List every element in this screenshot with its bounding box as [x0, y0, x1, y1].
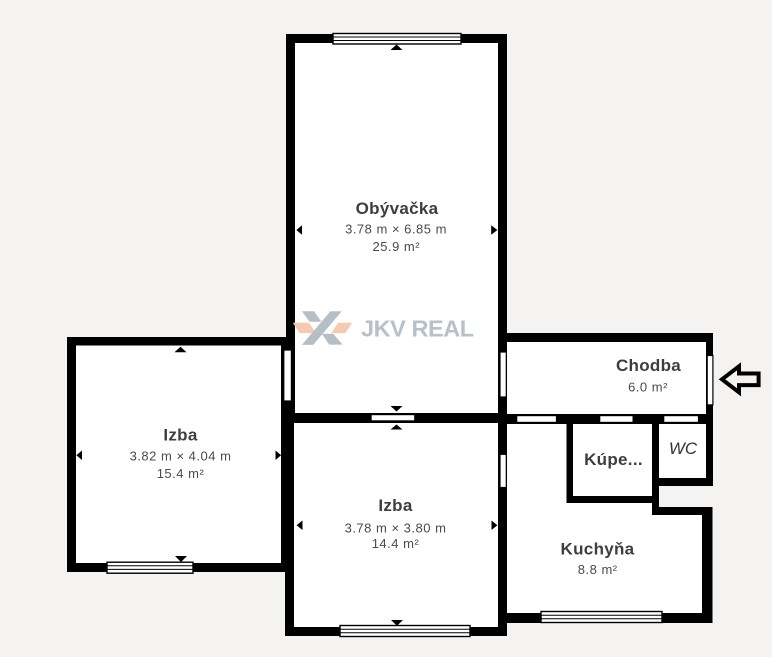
svg-text:8.8 m²: 8.8 m² — [578, 562, 618, 577]
svg-text:JKV REAL: JKV REAL — [361, 316, 474, 342]
svg-text:Kuchyňa: Kuchyňa — [561, 540, 635, 559]
svg-text:3.78 m × 6.85 m: 3.78 m × 6.85 m — [345, 221, 447, 236]
svg-text:3.82 m × 4.04 m: 3.82 m × 4.04 m — [130, 448, 232, 463]
svg-text:3.78 m × 3.80 m: 3.78 m × 3.80 m — [345, 521, 447, 536]
svg-text:14.4 m²: 14.4 m² — [372, 536, 420, 551]
svg-text:Obývačka: Obývačka — [356, 199, 439, 218]
svg-text:6.0 m²: 6.0 m² — [628, 380, 668, 395]
svg-text:Izba: Izba — [378, 496, 413, 515]
svg-text:Chodba: Chodba — [616, 356, 681, 375]
svg-text:WC: WC — [669, 439, 698, 458]
svg-text:Izba: Izba — [163, 426, 198, 445]
svg-text:Kúpe...: Kúpe... — [584, 450, 643, 469]
svg-text:15.4 m²: 15.4 m² — [157, 466, 205, 481]
svg-text:25.9 m²: 25.9 m² — [373, 239, 421, 254]
